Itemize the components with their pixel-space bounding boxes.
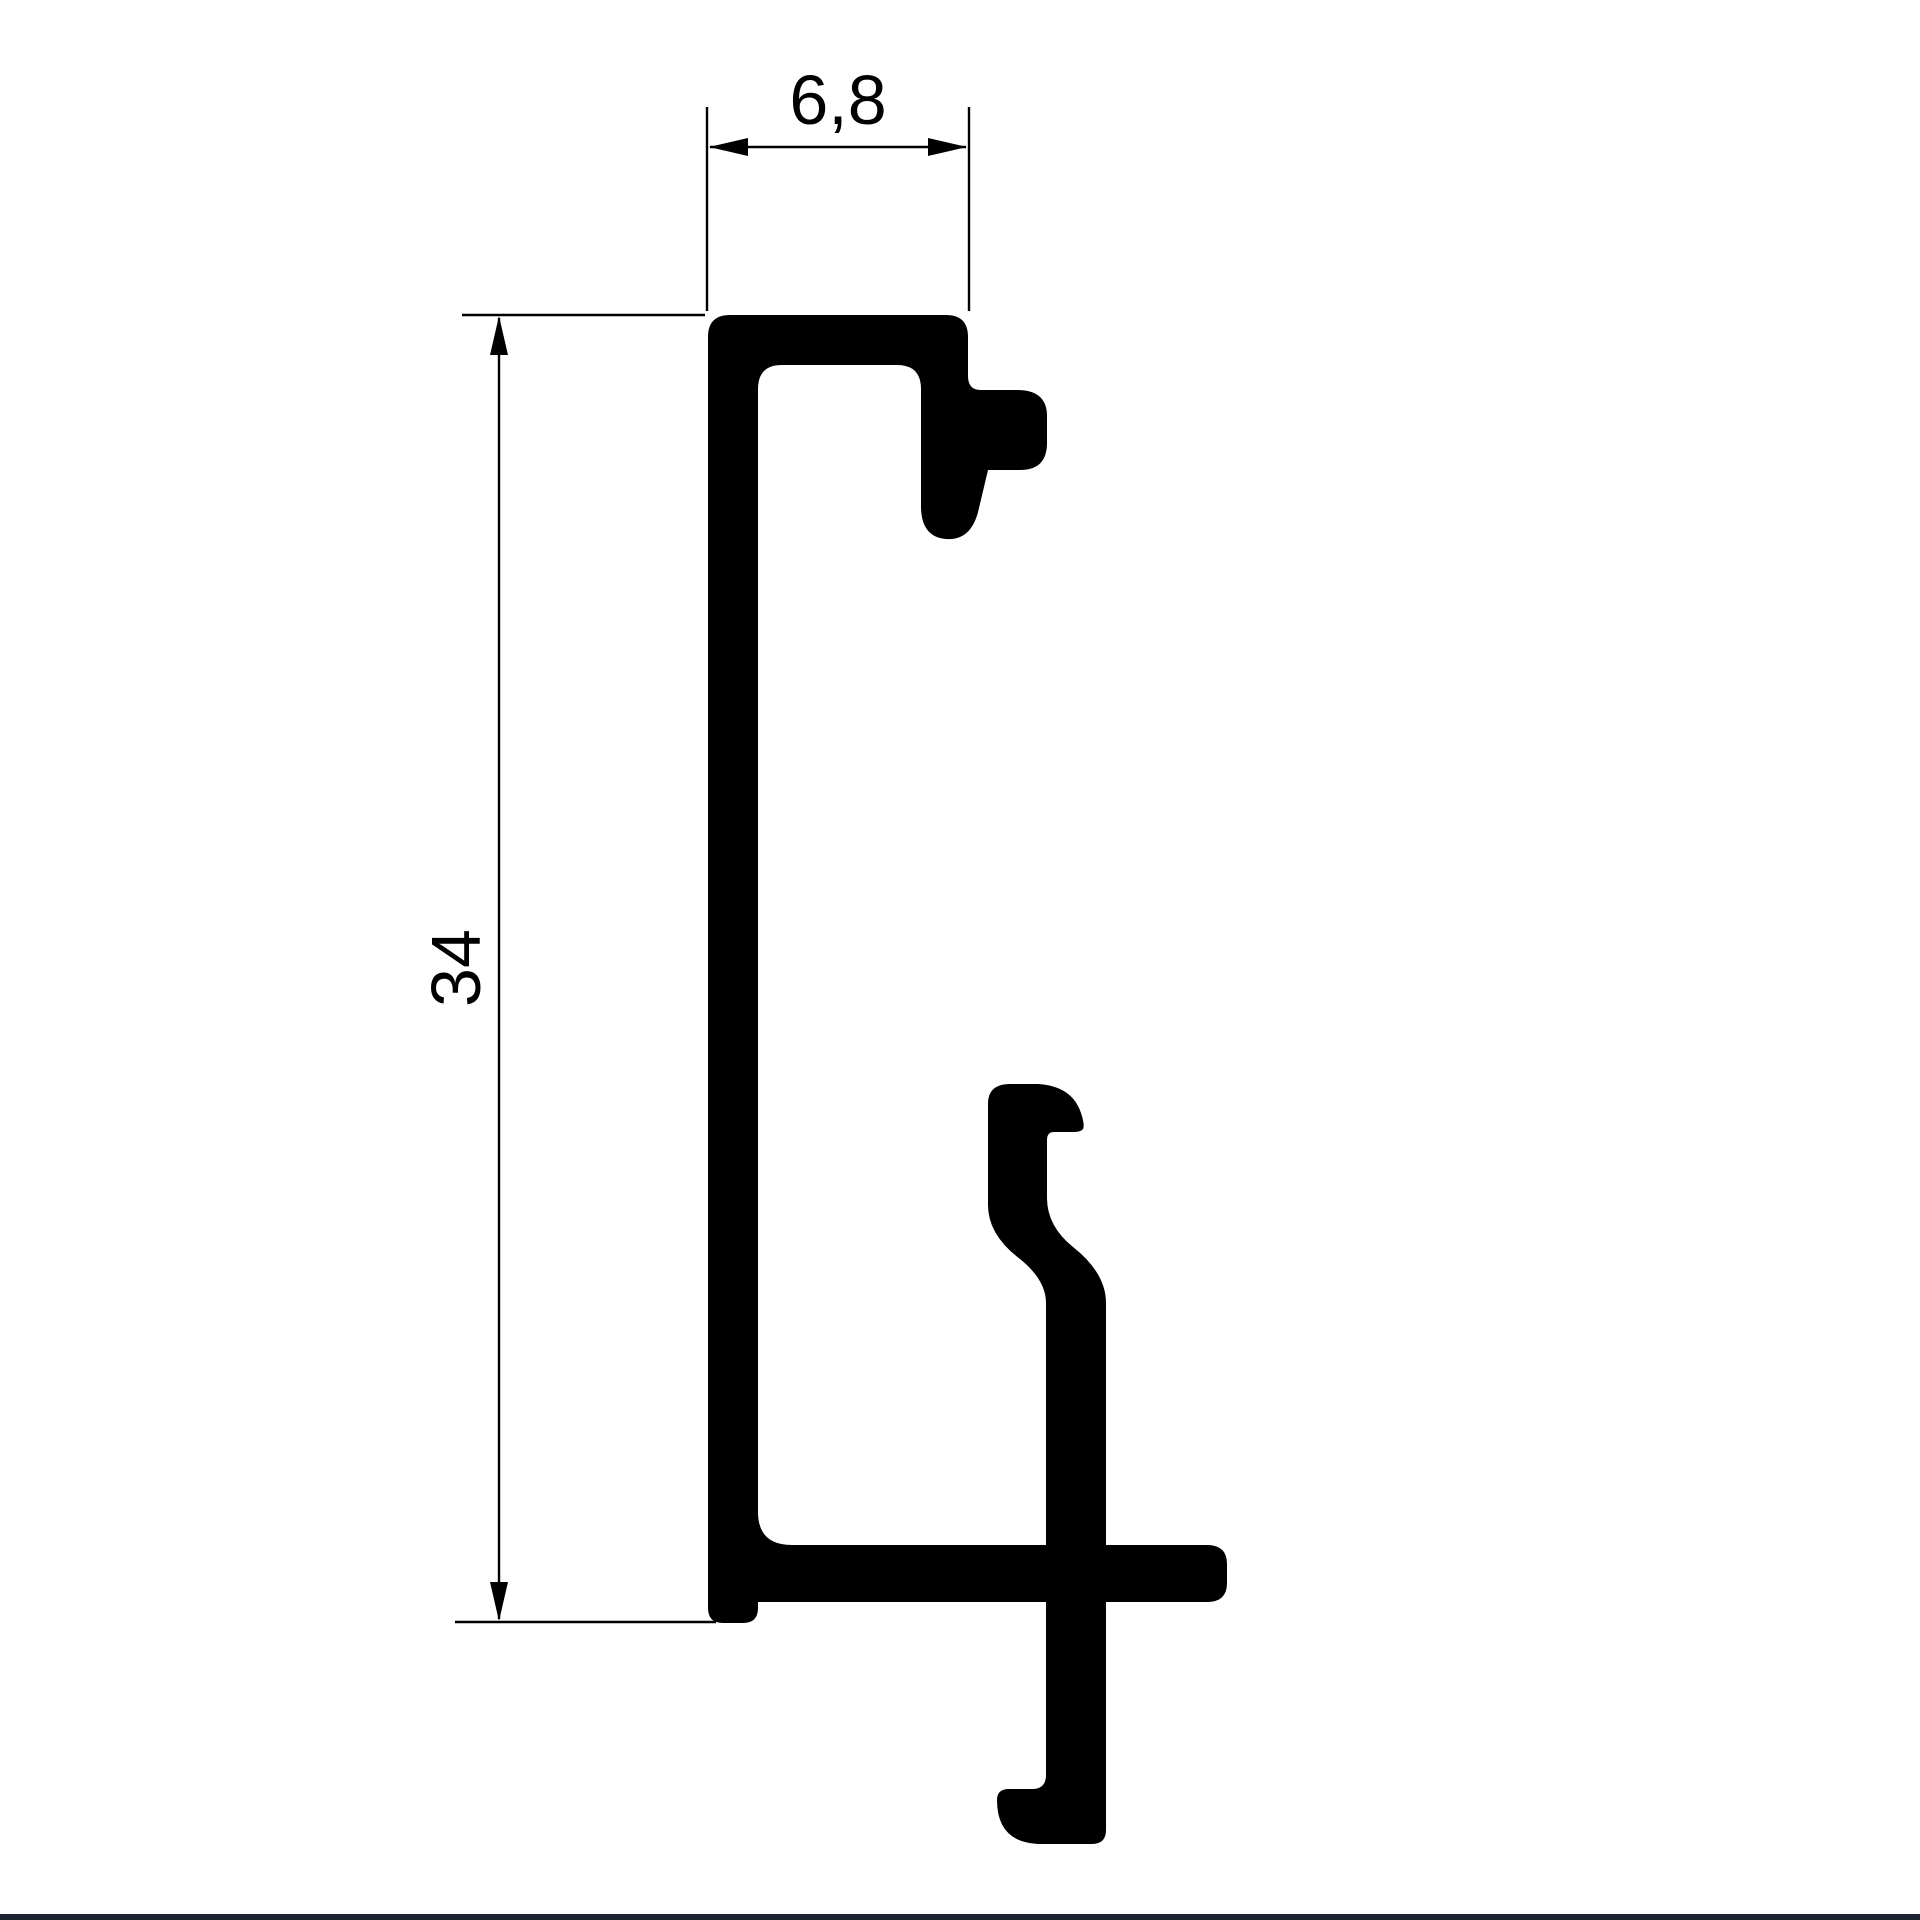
- arrowhead-down-icon: [490, 1582, 508, 1621]
- dimension-width: 6,8: [707, 61, 969, 311]
- technical-drawing: 6,8 34: [0, 0, 1920, 1920]
- profile-main-body: [708, 315, 1047, 1623]
- profile-middle-hook: [988, 1084, 1106, 1580]
- dim-height-label: 34: [417, 929, 495, 1007]
- arrowhead-left-icon: [709, 138, 748, 156]
- profile-cross-section: [708, 315, 1227, 1844]
- arrowhead-up-icon: [490, 316, 508, 355]
- profile-bottom-flange: [745, 1512, 1227, 1602]
- arrowhead-right-icon: [928, 138, 967, 156]
- dim-width-label: 6,8: [789, 61, 886, 139]
- bottom-border-line: [0, 1914, 1920, 1920]
- profile-bottom-foot: [997, 1570, 1106, 1844]
- drawing-canvas: 6,8 34: [0, 0, 1920, 1920]
- dimension-height: 34: [417, 315, 716, 1622]
